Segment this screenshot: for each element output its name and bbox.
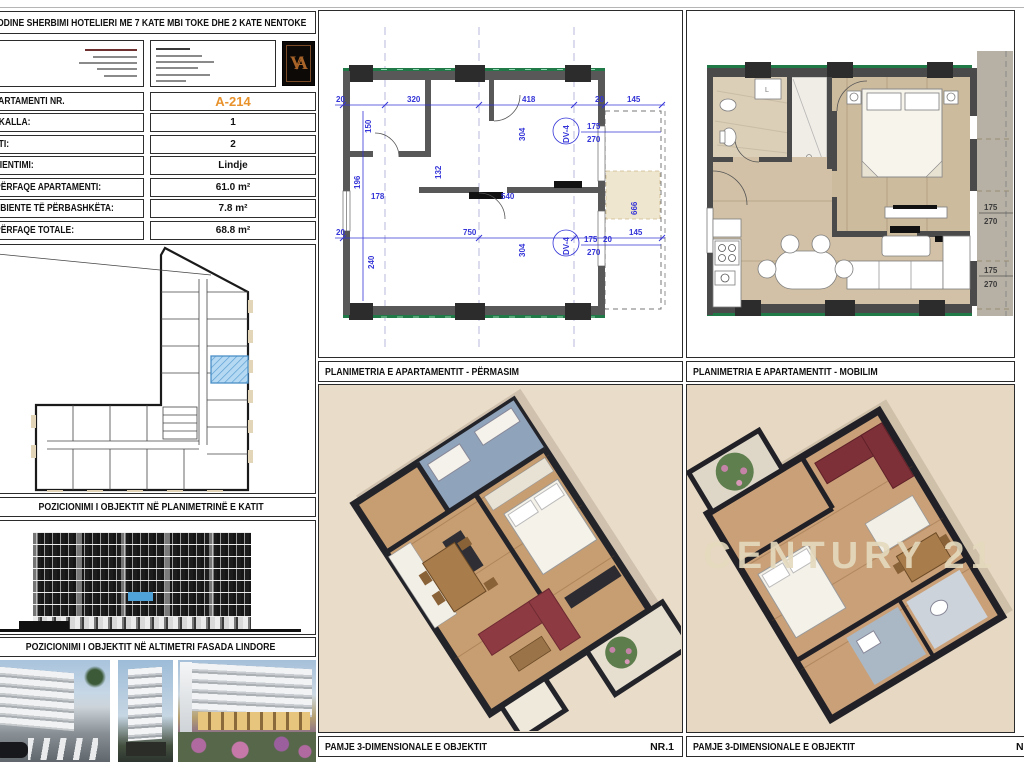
- dimension-plan-drawing: 20 320 418 20 145 150 304 DV-4 175 270 1…: [319, 11, 681, 356]
- key-plan-drawing: [0, 245, 314, 492]
- dim-label: 270: [587, 248, 601, 257]
- dim-label: 150: [364, 119, 373, 133]
- key-plan-panel: [0, 244, 316, 494]
- table-value: 61.0 m²: [216, 182, 250, 193]
- drawing-sheet: GODINE SHERBIMI HOTELIERI ME 7 KATE MBI …: [0, 0, 1024, 768]
- view3d-left-panel: [318, 384, 683, 733]
- dim-label: 304: [518, 127, 527, 141]
- apartment-number: A-214: [215, 94, 250, 109]
- studio-logo: VA: [282, 41, 315, 86]
- table-value: 2: [230, 139, 236, 150]
- dim-label: DV-4: [562, 125, 571, 143]
- elevation-caption: POZICIONIMI I OBJEKTIT NË ALTIMETRI FASA…: [0, 637, 316, 657]
- dim-label: 270: [984, 217, 998, 226]
- render-flowers: [178, 732, 316, 762]
- logo-monogram: VA: [286, 45, 311, 82]
- company-info-right: [150, 40, 276, 87]
- table-label: AMBIENTE TË PËRBASHKËTA:: [0, 203, 114, 214]
- table-label: KATI:: [0, 139, 9, 150]
- furnished-plan-panel: L: [686, 10, 1015, 358]
- furnished-plan-caption: PLANIMETRIA E APARTAMENTIT - MOBILIM: [686, 361, 1015, 382]
- render-street-view: [0, 660, 110, 762]
- dim-label: 145: [629, 228, 643, 237]
- table-label: APARTAMENTI NR.: [0, 96, 65, 107]
- dim-label: 20: [336, 228, 345, 237]
- dim-label: 750: [463, 228, 477, 237]
- view3d-right-caption: PAMJE 3-DIMENSIONALE E OBJEKTIT NR.2: [686, 736, 1024, 757]
- elevation-ground-line: [0, 629, 301, 632]
- dim-label: 418: [522, 95, 536, 104]
- table-label: ORIENTIMI:: [0, 160, 34, 171]
- view3d-right-panel: CENTURY 21: [686, 384, 1015, 733]
- key-plan-caption: POZICIONIMI I OBJEKTIT NË PLANIMETRINË E…: [0, 497, 316, 517]
- view3d-left-drawing: [319, 385, 681, 731]
- dim-label: 270: [984, 280, 998, 289]
- dim-label: 20: [336, 95, 345, 104]
- table-value: 1: [230, 117, 236, 128]
- table-value: Lindje: [218, 160, 247, 171]
- table-value: 68.8 m²: [216, 225, 250, 236]
- view-number: NR.2: [1016, 737, 1024, 756]
- dimension-plan-panel: 20 320 418 20 145 150 304 DV-4 175 270 1…: [318, 10, 683, 358]
- table-label: SHKALLA:: [0, 117, 30, 128]
- dim-label: 196: [353, 175, 362, 189]
- dim-label: 20: [603, 235, 612, 244]
- dim-label: 178: [371, 192, 385, 201]
- dim-label: 304: [518, 243, 527, 257]
- render-garden-view: [178, 660, 316, 762]
- dim-label: 540: [501, 192, 515, 201]
- elevation-base-block: [19, 621, 69, 629]
- render-corner-view: [118, 660, 173, 762]
- view-number: NR.1: [650, 737, 674, 756]
- table-label: SIPËRFAQE TOTALE:: [0, 225, 74, 236]
- sheet-top-border: [0, 7, 1024, 8]
- elevation-panel: [0, 520, 316, 635]
- view3d-right-drawing: [687, 385, 1013, 731]
- dim-label: 175: [584, 235, 598, 244]
- render-pavilion: [198, 712, 310, 730]
- highlighted-unit: [211, 356, 248, 383]
- dim-label: 270: [587, 135, 601, 144]
- dim-label: 175: [984, 203, 998, 212]
- dim-label: 175: [587, 122, 601, 131]
- dim-label: 20: [595, 95, 604, 104]
- dim-label: 666: [630, 201, 639, 215]
- table-label: SIPËRFAQE APARTAMENTI:: [0, 182, 101, 193]
- dim-label: 175: [984, 266, 998, 275]
- view3d-left-caption: PAMJE 3-DIMENSIONALE E OBJEKTIT NR.1: [318, 736, 683, 757]
- svg-text:L: L: [765, 87, 769, 94]
- title-bar: GODINE SHERBIMI HOTELIERI ME 7 KATE MBI …: [0, 11, 316, 34]
- elevation-highlight: [128, 592, 153, 601]
- elevation-facade: [33, 532, 251, 617]
- table-value: 7.8 m²: [219, 203, 248, 214]
- dim-label: 132: [434, 165, 443, 179]
- dim-label: DV-4: [562, 237, 571, 255]
- dim-label: 145: [627, 95, 641, 104]
- render-car: [0, 742, 28, 758]
- dim-label: 240: [367, 255, 376, 269]
- company-info-left: [0, 40, 144, 87]
- dim-label: 320: [407, 95, 421, 104]
- sheet-title: GODINE SHERBIMI HOTELIERI ME 7 KATE MBI …: [0, 17, 306, 29]
- dimension-plan-caption: PLANIMETRIA E APARTAMENTIT - PËRMASIM: [318, 361, 683, 382]
- furnished-plan-drawing: L: [687, 11, 1013, 356]
